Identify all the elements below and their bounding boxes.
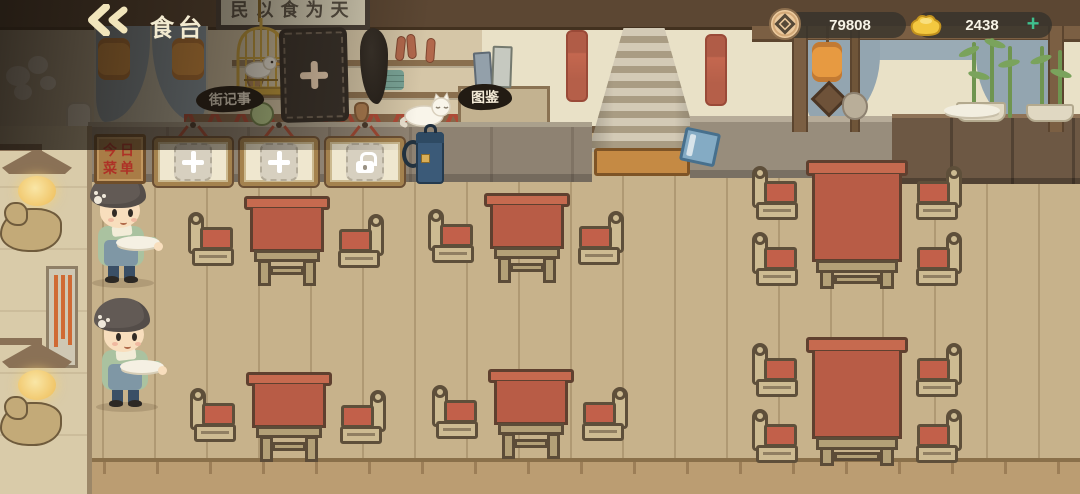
today-menu-line1: 今日 xyxy=(103,141,137,159)
chevron-left-icon xyxy=(84,4,136,36)
table-top xyxy=(812,351,902,439)
orange-lantern-icon xyxy=(172,38,204,80)
menu-slot-board xyxy=(154,138,232,186)
chair-cushion xyxy=(764,181,797,204)
chair xyxy=(432,385,480,441)
catalog-label: 图鉴 xyxy=(471,89,499,105)
chair-cushion xyxy=(917,424,950,447)
chair xyxy=(914,166,962,222)
plus-icon xyxy=(268,151,290,173)
table-top xyxy=(252,384,326,428)
sack-icon xyxy=(842,92,868,120)
blue-book-icon xyxy=(679,127,721,168)
slot-tile xyxy=(346,143,384,181)
dining-table-2seat xyxy=(428,193,624,285)
chair xyxy=(428,209,476,265)
plate-icon xyxy=(944,104,1000,117)
table xyxy=(246,372,332,464)
chair-cushion xyxy=(440,224,473,247)
nail xyxy=(190,122,196,128)
table xyxy=(806,337,908,467)
slot-tile xyxy=(260,143,298,181)
chair-cushion xyxy=(764,358,797,381)
chair-cushion xyxy=(917,181,950,204)
chair-cushion xyxy=(200,227,233,250)
orange-lantern-icon xyxy=(812,42,842,82)
dining-table-2seat xyxy=(432,369,628,461)
chair xyxy=(338,390,386,446)
chair-cushion xyxy=(339,229,372,252)
menu-slot-row xyxy=(154,122,404,186)
dining-table-2seat xyxy=(188,196,384,288)
chair-cushion xyxy=(341,405,374,428)
nail xyxy=(362,122,368,128)
server-character[interactable] xyxy=(74,176,166,288)
server-character[interactable] xyxy=(78,300,170,412)
add-poster-slot[interactable] xyxy=(283,31,345,119)
chair-cushion xyxy=(579,226,612,249)
table xyxy=(806,160,908,290)
dining-table-4seat xyxy=(752,337,962,467)
table-top xyxy=(494,381,568,425)
chair-cushion xyxy=(583,402,616,425)
menu-slot-board xyxy=(240,138,318,186)
chair xyxy=(752,343,800,399)
today-menu-sign[interactable]: 今日 菜单 xyxy=(94,134,146,184)
menu-slot-add[interactable] xyxy=(154,122,232,186)
chair xyxy=(914,409,962,465)
chair-cushion xyxy=(202,403,235,426)
chair xyxy=(914,232,962,288)
lantern-glow xyxy=(18,370,56,400)
plus-icon xyxy=(300,61,329,90)
red-scroll-banner xyxy=(566,30,588,102)
table xyxy=(488,369,574,461)
dining-table-4seat xyxy=(752,160,962,290)
hairpin-flower-icon xyxy=(98,320,106,328)
chair-cushion xyxy=(764,424,797,447)
food-stall-scene: 民以食为天 街记事 图鉴 xyxy=(0,0,1080,494)
table-top xyxy=(250,208,324,252)
lantern-glow xyxy=(18,176,56,206)
hairpin-flower-icon xyxy=(94,196,102,204)
dining-table-2seat xyxy=(190,372,386,464)
menu-slot-locked[interactable] xyxy=(326,122,404,186)
chair xyxy=(914,343,962,399)
chair xyxy=(190,388,238,444)
chair xyxy=(188,212,236,268)
table-top xyxy=(490,205,564,249)
lion-statue-icon xyxy=(0,208,62,252)
back-button[interactable] xyxy=(84,4,136,36)
chair xyxy=(336,214,384,270)
satchel-icon xyxy=(402,128,446,186)
nail xyxy=(276,122,282,128)
plant-pot-icon xyxy=(1026,104,1074,122)
chair xyxy=(752,166,800,222)
lion-statue-icon xyxy=(0,402,62,446)
red-scroll-banner xyxy=(705,34,727,106)
stair-step xyxy=(594,148,690,176)
table-top xyxy=(812,174,902,262)
chair xyxy=(576,211,624,267)
table xyxy=(244,196,330,288)
add-currency-button[interactable]: + xyxy=(1022,14,1044,36)
sausage-icon xyxy=(425,38,436,64)
book-icon xyxy=(491,46,512,89)
street-journal-label: 街记事 xyxy=(209,90,252,107)
menu-slot-board xyxy=(326,138,404,186)
slot-tile xyxy=(174,143,212,181)
chair xyxy=(752,409,800,465)
chair xyxy=(752,232,800,288)
orange-lantern-icon xyxy=(98,38,130,80)
plus-icon xyxy=(182,151,204,173)
table xyxy=(484,193,570,285)
chair-cushion xyxy=(764,247,797,270)
chair-cushion xyxy=(444,400,477,423)
chair-cushion xyxy=(917,247,950,270)
page-title: 食台 xyxy=(150,8,206,43)
ingot-currency-pill[interactable]: 2438 + xyxy=(916,12,1052,38)
chair xyxy=(580,387,628,443)
lock-icon xyxy=(356,152,374,173)
menu-slot-add[interactable] xyxy=(240,122,318,186)
chair-cushion xyxy=(917,358,950,381)
stone-lantern-icon xyxy=(2,148,72,174)
book-icon xyxy=(473,51,493,88)
gold-ingot-icon xyxy=(908,10,944,42)
coin-currency-pill[interactable]: 79808 xyxy=(776,12,906,38)
copper-coin-icon xyxy=(768,7,802,45)
today-menu-line2: 菜单 xyxy=(103,159,137,177)
